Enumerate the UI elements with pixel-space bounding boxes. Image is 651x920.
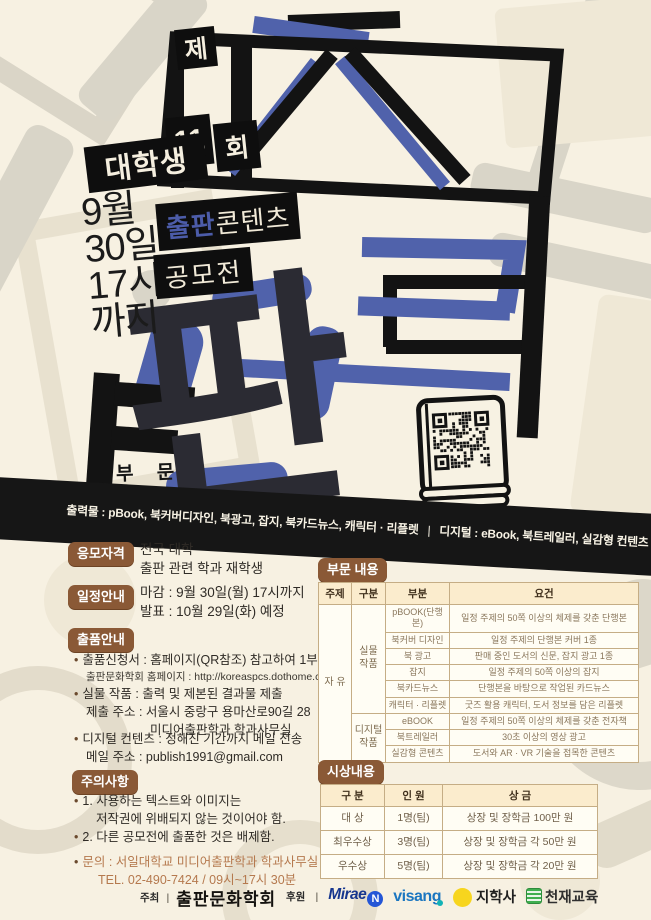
- table-row: 우수상 5명(팀) 상장 및 장학금 각 20만 원: [321, 855, 598, 879]
- col-header: 구 분: [321, 785, 385, 807]
- band-separator: |: [427, 523, 431, 537]
- visang-wordmark: visang: [393, 888, 441, 905]
- part-cell: 잡지: [386, 665, 450, 681]
- part-cell: 북트레일러: [386, 730, 450, 746]
- round-prefix: 제: [183, 29, 210, 67]
- req-cell: 30초 이상의 영상 광고: [450, 730, 639, 746]
- part-cell: 실감형 콘텐츠: [386, 746, 450, 762]
- table-row: 최우수상 3명(팀) 상장 및 장학금 각 50만 원: [321, 831, 598, 855]
- req-cell: 굿즈 활용 캐릭터, 도서 정보를 담은 리플렛: [450, 697, 639, 713]
- notice-line: 1. 사용하는 텍스트와 이미지는: [82, 794, 241, 808]
- title-highlight: 출판: [164, 204, 217, 245]
- bullet-icon: •: [74, 794, 78, 808]
- sponsor-row: 후원 | MiraeN visang 지학사 천재교육: [286, 886, 598, 907]
- table-row: 자 유 실물작품 pBOOK(단행본) 일정 주제의 50쪽 이상의 체제를 갖…: [319, 605, 639, 633]
- round-prefix-box: 제: [174, 26, 218, 70]
- band-digital-categories: 디지털 : eBook, 북트레일러, 실감형 컨텐츠: [439, 524, 649, 550]
- notice-badge: 주의사항: [72, 770, 138, 794]
- schedule-line: 발표 : 10월 29일(화) 예정: [140, 602, 305, 621]
- visang-logo: visang: [393, 888, 443, 906]
- submission-line: 디지털 컨텐츠 : 정해진 기간까지 메일 전송: [82, 732, 302, 746]
- rank-cell: 우수상: [321, 855, 385, 879]
- col-header: 주제: [319, 583, 352, 605]
- part-cell: 캐릭터 · 리플렛: [386, 697, 450, 713]
- title-tail: 콘텐츠: [214, 198, 292, 241]
- req-cell: 일정 주제의 단행본 커버 1종: [450, 632, 639, 648]
- group-label: 디지털: [354, 725, 383, 738]
- bullet-icon: •: [74, 653, 78, 667]
- awards-badge: 시상내용: [318, 760, 384, 784]
- table-row: 디지털작품 eBOOK 일정 주제의 50쪽 이상의 체제를 갖춘 전자책: [319, 713, 639, 729]
- schedule-badge: 일정안내: [68, 585, 134, 609]
- col-header: 요건: [450, 583, 639, 605]
- rank-cell: 최우수상: [321, 831, 385, 855]
- req-cell: 판매 중인 도서의 신문, 잡지 광고 1종: [450, 648, 639, 664]
- sponsor-label: 후원: [286, 889, 305, 904]
- req-cell: 단행본을 바탕으로 작업된 카드뉴스: [450, 681, 639, 697]
- count-cell: 1명(팀): [385, 807, 443, 831]
- eligibility-line: 출판 관련 학과 재학생: [140, 559, 263, 578]
- part-cell: eBOOK: [386, 713, 450, 729]
- contest-poster: 판 제 11 회 대학생: [0, 0, 651, 920]
- miraen-logo: MiraeN: [328, 886, 383, 907]
- col-header: 상 금: [443, 785, 598, 807]
- bullet-icon: •: [74, 687, 78, 701]
- table-row: 대 상 1명(팀) 상장 및 장학금 100만 원: [321, 807, 598, 831]
- col-header: 구분: [352, 583, 386, 605]
- subtitle: 공모전: [163, 251, 244, 295]
- qr-book: [416, 397, 510, 509]
- submission-line: 실물 작품 : 출력 및 제본된 결과물 제출: [82, 687, 282, 701]
- schedule-text: 마감 : 9월 30일(월) 17시까지 발표 : 10월 29일(화) 예정: [140, 583, 305, 621]
- group-label: 작품: [354, 738, 383, 751]
- count-cell: 3명(팀): [385, 831, 443, 855]
- prize-cell: 상장 및 장학금 100만 원: [443, 807, 598, 831]
- sections-table: 주제 구분 부분 요건 자 유 실물작품 pBOOK(단행본) 일정 주제의 5…: [318, 582, 639, 763]
- group-cell-digital: 디지털작품: [352, 713, 386, 762]
- table-header-row: 주제 구분 부분 요건: [319, 583, 639, 605]
- part-cell: 북커버 디자인: [386, 632, 450, 648]
- band-print-categories: 출력물 : pBook, 북커버디자인, 북광고, 잡지, 북카드뉴스, 캐릭터…: [66, 503, 419, 537]
- chunjae-book-icon: [526, 888, 542, 904]
- host-label: 주최: [140, 890, 159, 905]
- req-cell: 일정 주제의 50쪽 이상의 잡지: [450, 665, 639, 681]
- schedule-line: 마감 : 9월 30일(월) 17시까지: [140, 583, 305, 602]
- prize-cell: 상장 및 장학금 각 20만 원: [443, 855, 598, 879]
- rank-cell: 대 상: [321, 807, 385, 831]
- submission-line: 출품신청서 : 홈페이지(QR참조) 참고하여 1부 제출: [82, 653, 344, 667]
- jihaksa-logo: 지학사: [453, 886, 516, 907]
- req-cell: 도서와 AR · VR 기술을 접목한 콘텐츠: [450, 746, 639, 762]
- audience-label: 대학생: [102, 137, 190, 189]
- jihaksa-bubble-icon: [453, 888, 472, 907]
- bullet-icon: •: [74, 732, 78, 746]
- theme-cell: 자 유: [319, 605, 352, 763]
- divider: |: [315, 891, 318, 903]
- round-suffix: 회: [223, 126, 251, 165]
- sections-badge: 부문 내용: [318, 558, 387, 582]
- part-cell: 북카드뉴스: [386, 681, 450, 697]
- contest-subtitle-box: 공모전: [153, 247, 253, 299]
- section-word: 부 문: [116, 457, 184, 486]
- chunjae-logo: 천재교육: [526, 886, 598, 907]
- part-cell: 북 광고: [386, 648, 450, 664]
- miraen-wordmark: Mirae: [328, 886, 366, 903]
- divider: |: [166, 892, 169, 904]
- req-cell: 일정 주제의 50쪽 이상의 체제를 갖춘 단행본: [450, 605, 639, 633]
- group-cell-physical: 실물작품: [352, 605, 386, 714]
- awards-table: 구 분 인 원 상 금 대 상 1명(팀) 상장 및 장학금 100만 원 최우…: [320, 784, 598, 879]
- col-header: 부분: [386, 583, 450, 605]
- bullet-icon: •: [74, 855, 78, 869]
- eligibility-line: 전국 대학: [140, 540, 263, 559]
- count-cell: 5명(팀): [385, 855, 443, 879]
- jihaksa-wordmark: 지학사: [476, 890, 516, 906]
- group-label: 실물: [354, 646, 383, 659]
- table-header-row: 구 분 인 원 상 금: [321, 785, 598, 807]
- host-name: 출판문화학회: [176, 885, 276, 910]
- col-header: 인 원: [385, 785, 443, 807]
- req-cell: 일정 주제의 50쪽 이상의 체제를 갖춘 전자책: [450, 713, 639, 729]
- contact-line: 문의 : 서일대학교 미디어출판학과 학과사무실: [82, 855, 318, 869]
- visang-dot-icon: [437, 900, 443, 906]
- part-cell: pBOOK(단행본): [386, 605, 450, 633]
- host-row: 주최 | 출판문화학회: [140, 885, 276, 910]
- submission-badge: 출품안내: [68, 628, 134, 652]
- prize-cell: 상장 및 장학금 각 50만 원: [443, 831, 598, 855]
- bullet-icon: •: [74, 830, 78, 844]
- miraen-n-icon: N: [367, 891, 383, 907]
- round-suffix-box: 회: [213, 120, 262, 172]
- eligibility-text: 전국 대학 출판 관련 학과 재학생: [140, 540, 263, 578]
- chunjae-wordmark: 천재교육: [545, 890, 598, 906]
- group-label: 작품: [354, 659, 383, 672]
- eligibility-badge: 응모자격: [68, 542, 134, 566]
- notice-line: 2. 다른 공모전에 출품한 것은 배제함.: [82, 830, 274, 844]
